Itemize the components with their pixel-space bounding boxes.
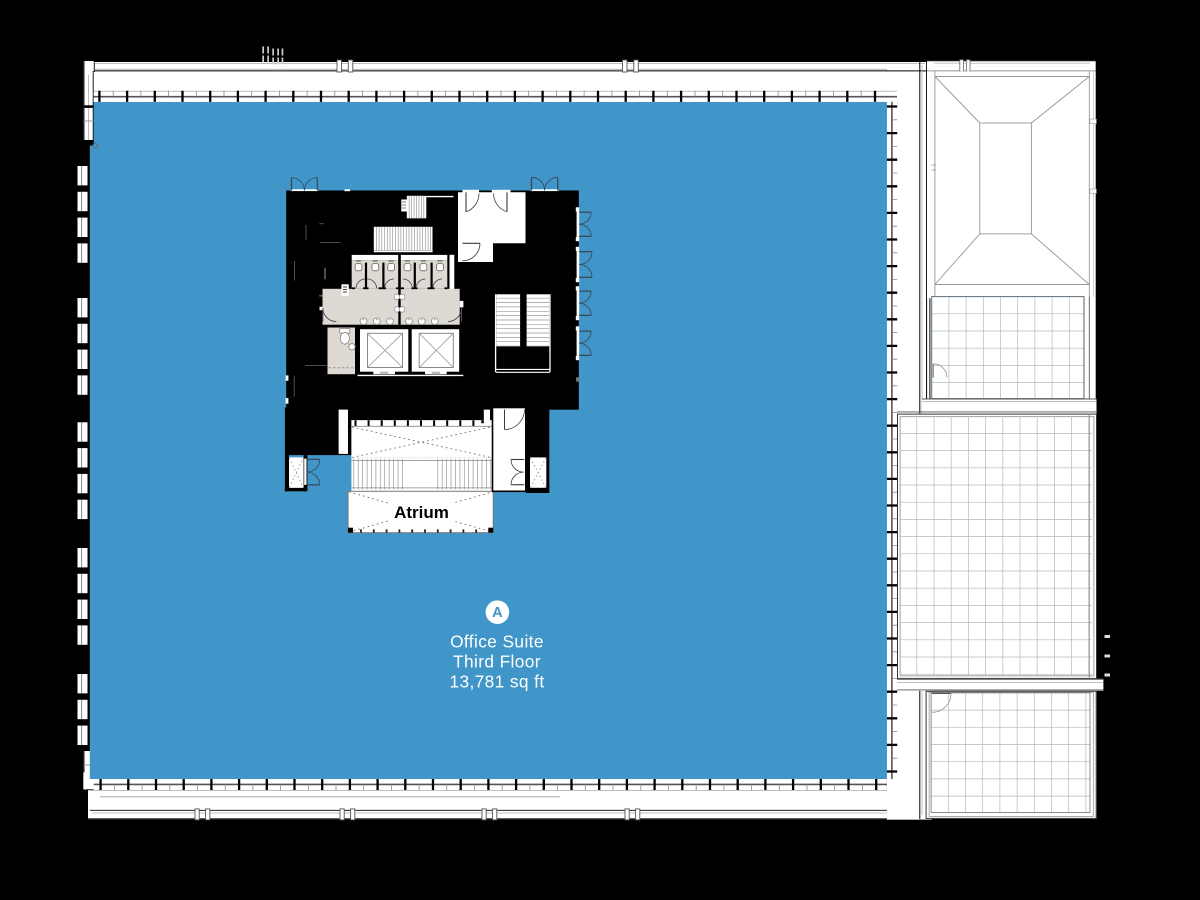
svg-text:Third Floor: Third Floor	[453, 652, 541, 672]
svg-text:Atrium: Atrium	[394, 503, 449, 522]
svg-text:A: A	[492, 605, 503, 621]
svg-text:13,781 sq ft: 13,781 sq ft	[449, 672, 544, 692]
svg-text:Office Suite: Office Suite	[450, 632, 544, 652]
